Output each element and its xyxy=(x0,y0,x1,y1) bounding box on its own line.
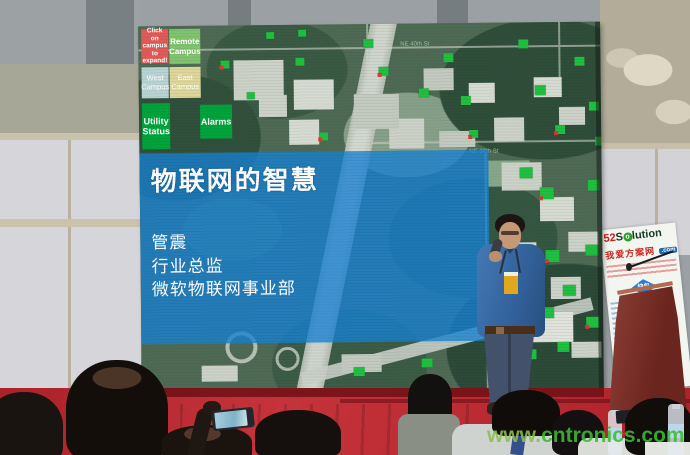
conference-badge xyxy=(504,272,518,294)
watermark-main: cntronics.com xyxy=(541,424,685,447)
venue-wall-right xyxy=(600,0,690,143)
site-watermark: www.cntronics.com xyxy=(487,424,690,448)
audience-head xyxy=(255,410,341,455)
glasses-icon xyxy=(501,231,519,235)
audience-shoulders xyxy=(398,414,460,455)
phone-screen xyxy=(214,410,247,429)
belt-buckle xyxy=(496,327,504,334)
conference-photo: 52Solution 我爱方案网 .com 快包 NE 40th StNE 36… xyxy=(0,0,690,455)
speaker-belt xyxy=(485,326,535,335)
sponsor-logo-s: S xyxy=(615,231,624,244)
speaker-face xyxy=(499,222,521,249)
venue-wall-left-green xyxy=(0,64,141,138)
microphone-icon xyxy=(626,263,632,271)
audience-head xyxy=(66,360,168,455)
watermark-prefix: www. xyxy=(487,424,541,447)
speaker-hand xyxy=(489,251,502,262)
bottle-cap xyxy=(672,404,680,409)
partition-wall-left xyxy=(0,133,141,395)
